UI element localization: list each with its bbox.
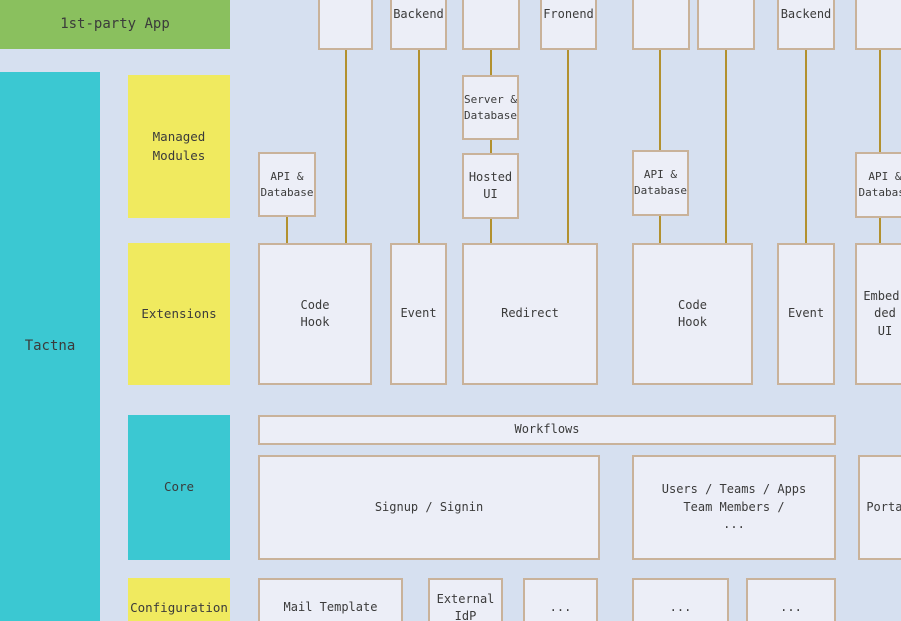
module-hosted-ui: Hosted UI [462,153,519,219]
config-mail-template: Mail Template [258,578,403,621]
core-signup-signin: Signup / Signin [258,455,600,560]
tactna-sidebar: Tactna [0,72,100,621]
connector-line [567,50,569,243]
architecture-diagram: 1st-party App Tactna Managed Modules Ext… [0,0,901,621]
connector-line [345,50,347,243]
ext-event-left: Event [390,243,447,385]
connector-line [286,217,288,243]
connector-line [490,50,492,75]
config-more-1: ... [523,578,598,621]
ext-code-hook-left: Code Hook [258,243,372,385]
connector-line [725,50,727,243]
connector-line [879,218,881,243]
row-label-extensions: Extensions [128,243,230,385]
ext-redirect: Redirect [462,243,598,385]
connector-line [659,216,661,243]
top-box-fronend: Fronend [540,0,597,50]
connector-line [879,50,881,152]
top-box-empty-1 [318,0,373,50]
core-portal: Portal [858,455,901,560]
core-workflows-bar: Workflows [258,415,836,445]
row-label-managed-modules: Managed Modules [128,75,230,218]
ext-code-hook-right: Code Hook [632,243,753,385]
config-more-2: ... [632,578,729,621]
ext-event-right: Event [777,243,835,385]
config-external-idp: External IdP [428,578,503,621]
top-box-backend-left: Backend [390,0,447,50]
module-api-database-left: API & Database [258,152,316,217]
connector-line [418,50,420,243]
connector-line [805,50,807,243]
module-api-database-right: API & Database [855,152,901,218]
top-box-backend-right: Backend [777,0,835,50]
row-label-core: Core [128,415,230,560]
top-box-empty-4 [697,0,755,50]
first-party-app-banner: 1st-party App [0,0,230,49]
connector-line [490,140,492,153]
ext-embedded-ui: Embed- ded UI [855,243,901,385]
top-box-empty-3 [632,0,690,50]
connector-line [490,219,492,243]
config-more-3: ... [746,578,836,621]
connector-line [659,50,661,150]
module-api-database-mid: API & Database [632,150,689,216]
row-label-configuration: Configuration [128,578,230,621]
module-server-database: Server & Database [462,75,519,140]
top-box-empty-5 [855,0,901,50]
core-users-teams: Users / Teams / Apps Team Members / ... [632,455,836,560]
top-box-empty-2 [462,0,520,50]
